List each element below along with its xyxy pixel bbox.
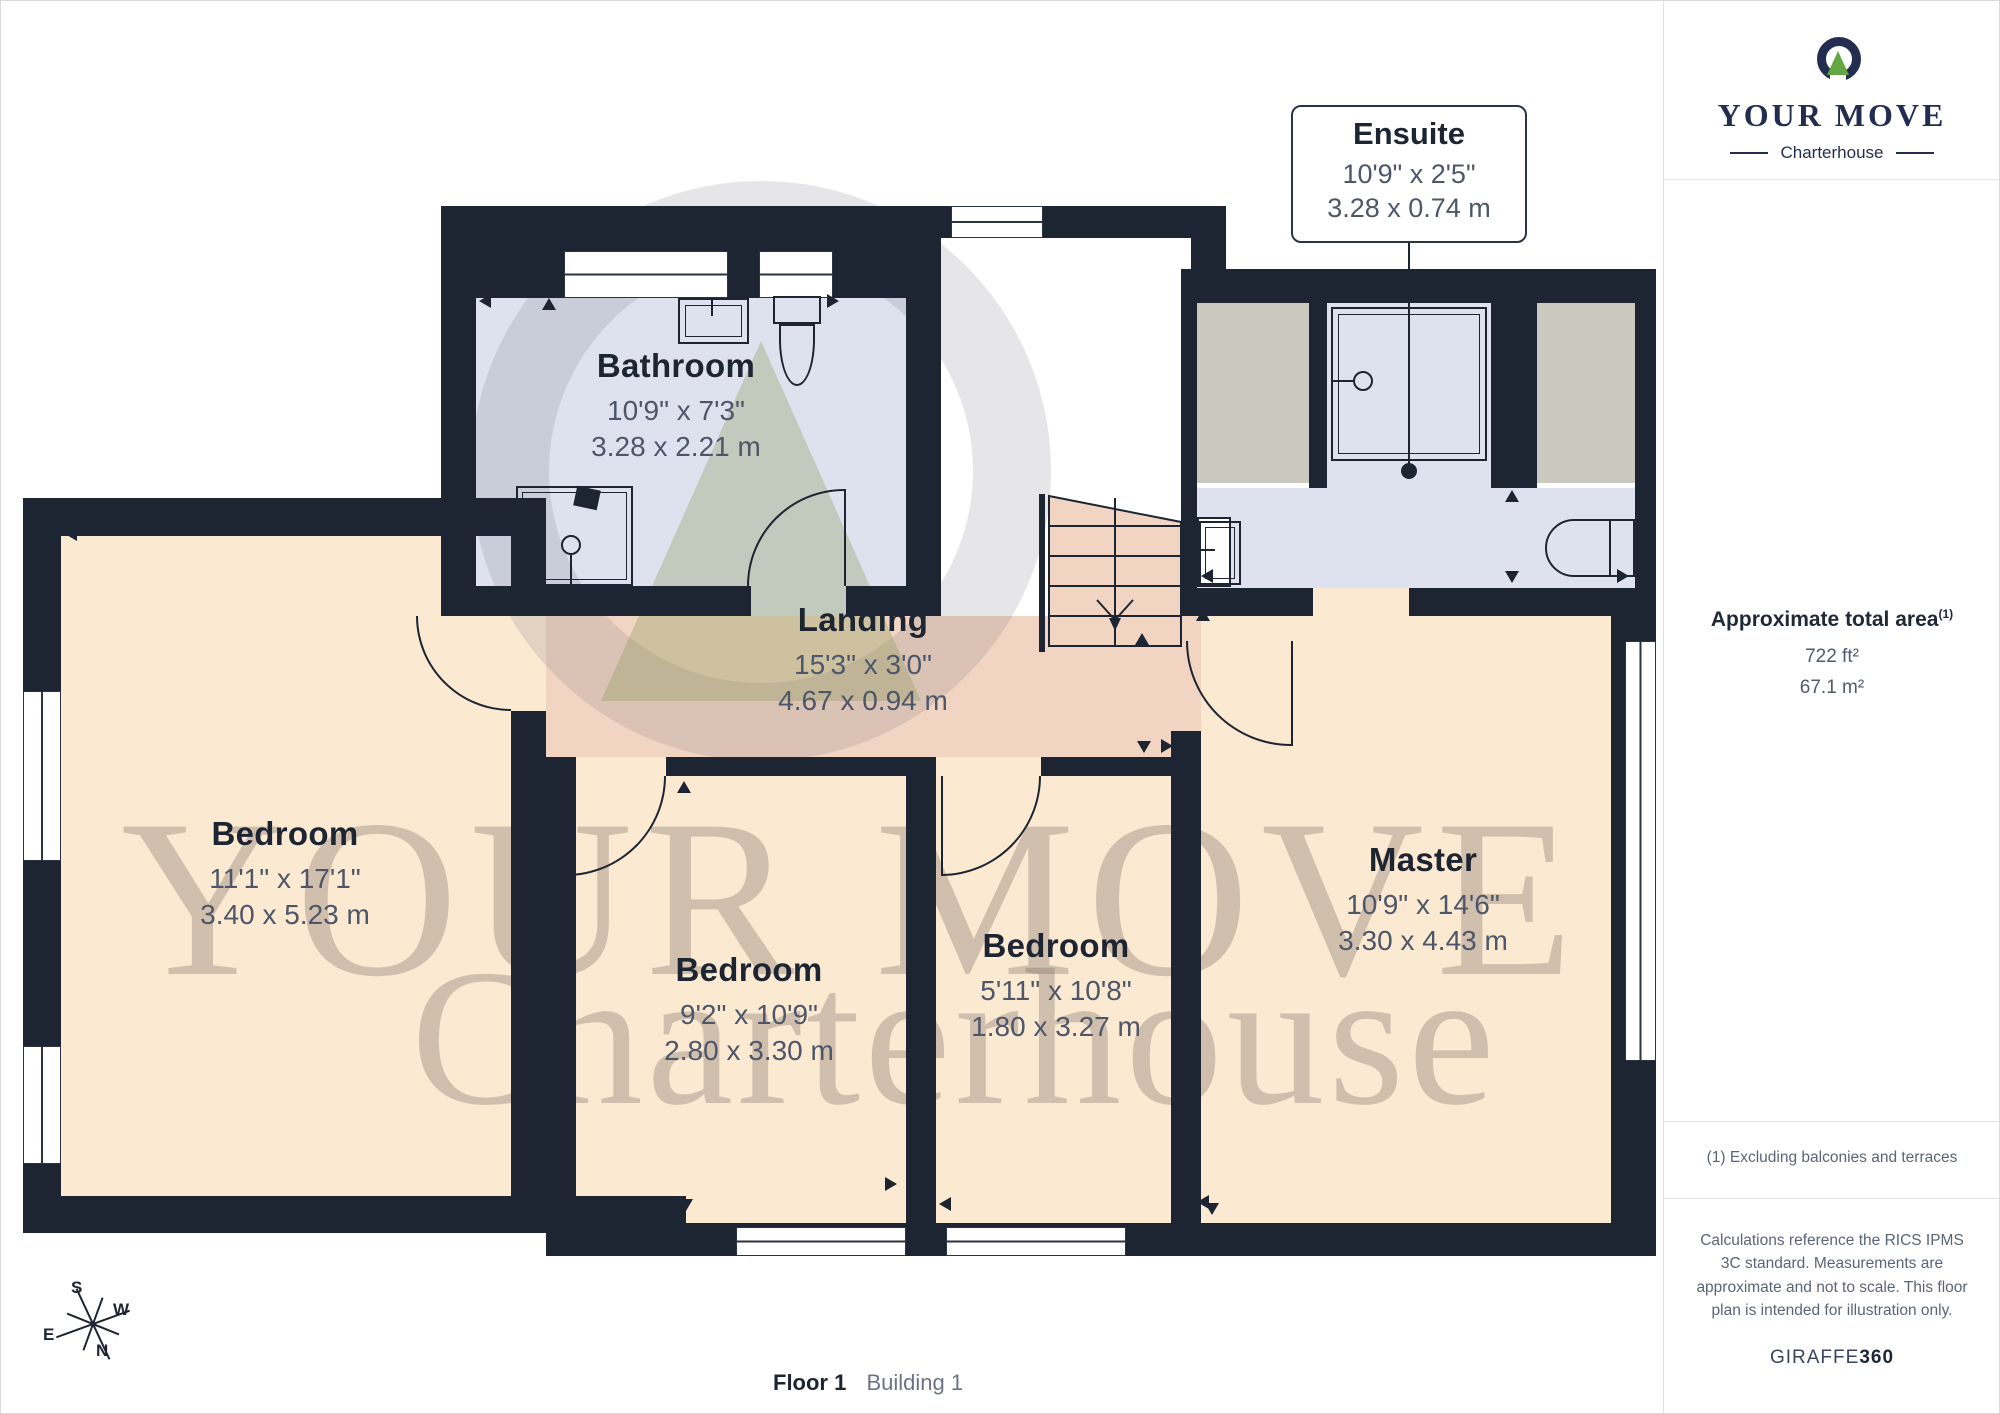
room-name: Ensuite bbox=[1293, 114, 1525, 154]
compass-center-dot bbox=[91, 1322, 96, 1327]
window bbox=[23, 691, 61, 861]
room-name: Master bbox=[1243, 839, 1603, 882]
giraffe-text: GIRAFFE bbox=[1770, 1347, 1859, 1368]
room-label-bedroom-middle: Bedroom 9'2" x 10'9" 2.80 x 3.30 m bbox=[569, 949, 929, 1070]
doorway-threshold bbox=[936, 757, 1041, 776]
room-name: Landing bbox=[683, 599, 1043, 642]
measure-arrow-icon bbox=[1617, 569, 1629, 583]
room-dims-imperial: 9'2" x 10'9" bbox=[680, 999, 818, 1030]
wall bbox=[511, 711, 546, 1233]
wall bbox=[1409, 588, 1656, 616]
wall bbox=[1491, 303, 1537, 488]
room-dims-metric: 3.28 x 0.74 m bbox=[1327, 193, 1491, 223]
window bbox=[564, 251, 728, 298]
room-dims-imperial: 15'3" x 3'0" bbox=[794, 649, 932, 680]
measure-arrow-icon bbox=[1505, 571, 1519, 583]
staircase bbox=[1039, 494, 1185, 652]
area-title-text: Approximate total area bbox=[1711, 608, 1939, 631]
measure-arrow-icon bbox=[1201, 569, 1213, 583]
master-ensuite-doorway bbox=[1313, 588, 1409, 616]
measure-arrow-icon bbox=[479, 294, 491, 308]
measure-arrow-icon bbox=[517, 571, 531, 583]
measure-arrow-icon bbox=[1615, 1189, 1627, 1203]
dash-line bbox=[1730, 152, 1768, 154]
room-label-bedroom-left: Bedroom 11'1" x 17'1" 3.40 x 5.23 m bbox=[105, 813, 465, 934]
giraffe360-logo: GIRAFFE360 bbox=[1663, 1347, 2000, 1369]
wall bbox=[546, 1196, 686, 1256]
measure-arrow-icon bbox=[1196, 609, 1210, 621]
disclaimer: Calculations reference the RICS IPMS 3C … bbox=[1695, 1229, 1969, 1322]
room-dims-imperial: 10'9" x 7'3" bbox=[607, 395, 745, 426]
building-label: Building 1 bbox=[866, 1370, 963, 1395]
sink-tap-line bbox=[711, 298, 713, 316]
floorplan-page: YOUR MOVE Charterhouse bbox=[0, 0, 2000, 1414]
measure-arrow-icon bbox=[827, 294, 839, 308]
room-dims-imperial: 5'11" x 10'8" bbox=[980, 975, 1131, 1006]
room-label-master: Master 10'9" x 14'6" 3.30 x 4.43 m bbox=[1243, 839, 1603, 960]
measure-arrow-icon bbox=[1137, 741, 1151, 753]
brand-sub-row: Charterhouse bbox=[1663, 143, 2000, 163]
floor-label: Floor 1 bbox=[773, 1370, 846, 1395]
door-leaf bbox=[1291, 641, 1293, 746]
closet-right-floor bbox=[1537, 303, 1635, 483]
wall bbox=[1181, 269, 1656, 303]
area-ft: 722 ft² bbox=[1663, 646, 2000, 668]
bathtub-line bbox=[1609, 519, 1611, 577]
footnote: (1) Excluding balconies and terraces bbox=[1663, 1149, 2000, 1167]
shower-head-icon bbox=[1353, 371, 1373, 391]
room-dims-imperial: 10'9" x 14'6" bbox=[1346, 889, 1500, 920]
logo-triangle-icon bbox=[1827, 51, 1849, 75]
room-dims-metric: 3.28 x 2.21 m bbox=[591, 431, 761, 462]
measure-arrow-icon bbox=[1135, 633, 1149, 645]
area-title-sup: (1) bbox=[1938, 607, 1953, 621]
divider bbox=[1663, 1198, 2000, 1199]
room-dims-metric: 2.80 x 3.30 m bbox=[664, 1035, 834, 1066]
compass-east: E bbox=[43, 1325, 54, 1345]
divider bbox=[1663, 179, 2000, 180]
window bbox=[946, 1227, 1126, 1256]
window bbox=[23, 1046, 61, 1164]
doorway-threshold bbox=[511, 616, 546, 711]
measure-arrow-icon bbox=[1161, 739, 1173, 753]
brand-name: YOUR MOVE bbox=[1663, 97, 2000, 134]
closet-left-floor bbox=[1197, 303, 1309, 483]
room-dims-metric: 4.67 x 0.94 m bbox=[778, 685, 948, 716]
room-name: Bedroom bbox=[105, 813, 465, 856]
room-name: Bathroom bbox=[496, 345, 856, 388]
door-leaf bbox=[844, 489, 846, 586]
room-dims-metric: 3.30 x 4.43 m bbox=[1338, 925, 1508, 956]
ensuite-leader-line bbox=[1408, 243, 1410, 469]
area-title: Approximate total area(1) bbox=[1663, 607, 2000, 632]
measure-arrow-icon bbox=[677, 781, 691, 793]
room-name: Bedroom bbox=[569, 949, 929, 992]
shower-drain-icon bbox=[561, 535, 581, 555]
room-label-bathroom: Bathroom 10'9" x 7'3" 3.28 x 2.21 m bbox=[496, 345, 856, 466]
room-name: Bedroom bbox=[876, 925, 1236, 968]
measure-arrow-icon bbox=[65, 527, 77, 541]
room-dims-metric: 3.40 x 5.23 m bbox=[200, 899, 370, 930]
measure-arrow-icon bbox=[1505, 490, 1519, 502]
measure-arrow-icon bbox=[885, 1177, 897, 1191]
wall bbox=[441, 206, 476, 616]
divider bbox=[1663, 1121, 2000, 1122]
room-dims-imperial: 11'1" x 17'1" bbox=[209, 863, 360, 894]
area-m: 67.1 m² bbox=[1663, 677, 2000, 699]
giraffe-360: 360 bbox=[1859, 1347, 1894, 1368]
measure-arrow-icon bbox=[679, 1199, 693, 1211]
sink-basin bbox=[685, 305, 742, 337]
compass-south: S bbox=[71, 1278, 82, 1298]
door-leaf bbox=[941, 776, 943, 876]
window bbox=[1625, 641, 1656, 1061]
doorway-threshold bbox=[576, 757, 666, 776]
shower-arm-line bbox=[1331, 380, 1355, 382]
ensuite-callout: Ensuite 10'9" x 2'5" 3.28 x 0.74 m bbox=[1291, 105, 1527, 243]
wall bbox=[906, 206, 941, 586]
measure-arrow-icon bbox=[939, 1197, 951, 1211]
measure-arrow-icon bbox=[1205, 1203, 1219, 1215]
wall bbox=[1309, 303, 1327, 488]
wall bbox=[1635, 269, 1656, 613]
measure-arrow-icon bbox=[542, 298, 556, 310]
toilet-cistern bbox=[773, 296, 821, 324]
wall bbox=[1171, 1223, 1656, 1256]
brand-sub: Charterhouse bbox=[1780, 143, 1883, 162]
wall bbox=[23, 1196, 546, 1233]
room-dims-metric: 1.80 x 3.27 m bbox=[971, 1011, 1141, 1042]
room-label-bedroom-small: Bedroom 5'11" x 10'8" 1.80 x 3.27 m bbox=[876, 925, 1236, 1046]
room-label-landing: Landing 15'3" x 3'0" 4.67 x 0.94 m bbox=[683, 599, 1043, 720]
dash-line bbox=[1896, 152, 1934, 154]
compass-north: N bbox=[96, 1341, 108, 1361]
ensuite-leader-dot bbox=[1401, 463, 1417, 479]
door-leaf bbox=[566, 776, 568, 876]
floor-building-label: Floor 1 Building 1 bbox=[773, 1370, 963, 1396]
wall bbox=[666, 757, 936, 776]
sink-tap-line bbox=[1189, 549, 1203, 551]
window bbox=[759, 251, 833, 298]
compass-west: W bbox=[113, 1300, 129, 1320]
room-dims-imperial: 10'9" x 2'5" bbox=[1342, 159, 1475, 189]
sidebar bbox=[1663, 1, 2000, 1414]
shower-hose-line bbox=[570, 555, 572, 584]
window bbox=[736, 1227, 906, 1256]
window bbox=[951, 206, 1043, 238]
